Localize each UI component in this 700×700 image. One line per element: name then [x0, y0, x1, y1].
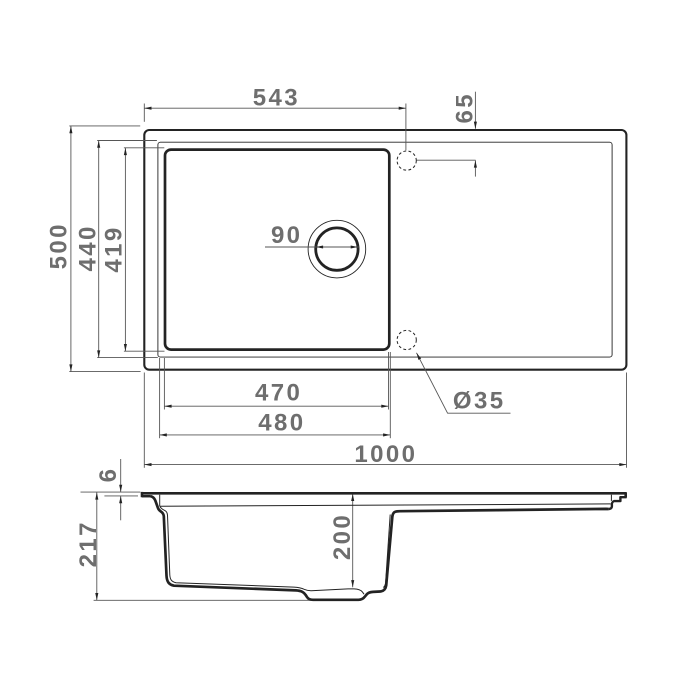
- svg-text:480: 480: [258, 409, 305, 436]
- svg-text:200: 200: [329, 513, 356, 560]
- svg-text:90: 90: [271, 222, 303, 249]
- svg-text:65: 65: [452, 92, 479, 124]
- svg-text:440: 440: [74, 224, 101, 271]
- svg-text:Ø35: Ø35: [453, 388, 506, 415]
- svg-text:1000: 1000: [354, 441, 417, 468]
- svg-text:543: 543: [253, 85, 300, 112]
- svg-text:470: 470: [255, 380, 302, 407]
- svg-text:217: 217: [75, 520, 102, 567]
- svg-text:500: 500: [45, 222, 72, 269]
- svg-text:419: 419: [101, 225, 128, 272]
- svg-text:6: 6: [95, 467, 122, 483]
